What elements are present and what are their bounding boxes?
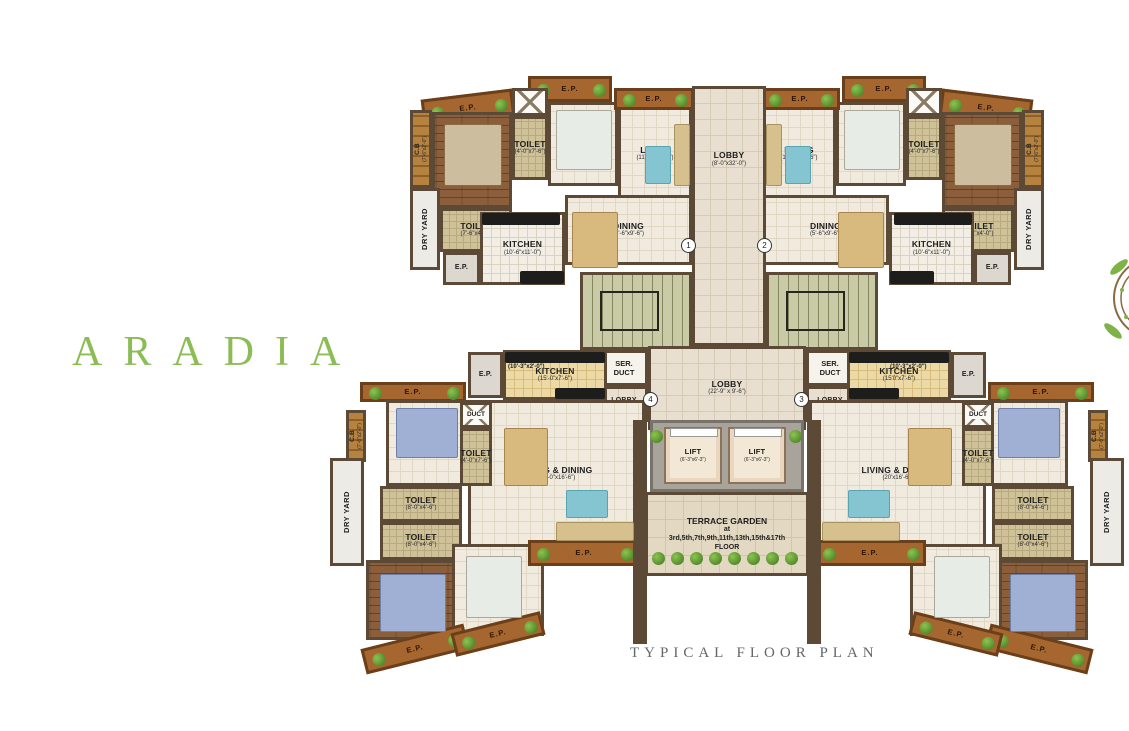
- toilet1-tr: TOILET(4'-0"x7'-6"): [906, 116, 942, 180]
- kitchen-tl-dims: (10'-6"x11'-0"): [504, 250, 541, 257]
- bed: [466, 556, 522, 618]
- toilet1-tr-label: TOILET: [908, 140, 939, 150]
- plant-icon: [461, 635, 477, 651]
- lift-2-label: LIFT: [749, 448, 766, 457]
- toilet-a-br: TOILET(8'-0"x4'-6"): [992, 486, 1074, 522]
- dryyard-tl: DRY YARD: [410, 188, 440, 270]
- counter-dim-label: (10'-3"x2'-0"): [890, 364, 927, 370]
- ep-service-tr: E.P.: [974, 252, 1011, 285]
- ep-balcony-br-b2-label: E.P.: [947, 628, 966, 641]
- toilet1-tr-dims: (4'-0"x7'-6"): [909, 149, 940, 156]
- cupboard-tr: C.B(7'-6"x2'-0"): [1022, 110, 1044, 188]
- bed: [954, 124, 1012, 186]
- kitchen-bl-dims: (15'-0"x7'-6"): [538, 376, 572, 383]
- duct-br: DUCT: [962, 402, 994, 428]
- plant-icon: [537, 548, 550, 561]
- plant-icon: [650, 430, 663, 443]
- plant-icon: [371, 652, 387, 668]
- ep-living-tl: E.P.: [614, 88, 694, 110]
- sofa: [556, 522, 634, 541]
- cupboard-tr-dims: (7'-6"x2'-0"): [1034, 136, 1040, 162]
- toilet-b-br: TOILET(8'-0"x4'-6"): [992, 522, 1074, 560]
- dining-table: [838, 212, 884, 268]
- cupboard-bl-dims: (7'-6"x2'-0"): [357, 423, 363, 449]
- plant-icon: [907, 548, 920, 561]
- ep-service-tl: E.P.: [443, 252, 480, 285]
- lobby-upper-dims: (8'-0"x32'-0"): [712, 161, 746, 168]
- plant-icon: [447, 387, 460, 400]
- cupboard-tl-label: C.B: [414, 143, 421, 155]
- ep-balcony-tr-outer-label: E.P.: [875, 85, 892, 94]
- toilet-a-bl-dims: (8'-0"x4'-6"): [406, 505, 437, 512]
- ep-living-tl-label: E.P.: [645, 95, 662, 104]
- kitchen-counter: [505, 352, 605, 363]
- kitchen-counter: [555, 388, 605, 399]
- toilet-b-bl-label: TOILET: [405, 533, 436, 543]
- plant-icon: [675, 94, 688, 107]
- toilet1-tl: TOILET(4'-0"x7'-6"): [512, 116, 548, 180]
- dryyard-tl-label: DRY YARD: [421, 208, 430, 250]
- plant-icon: [821, 94, 834, 107]
- toilet-small-bl-dims: (4'-0"x7'-6"): [461, 458, 492, 465]
- staircase-right: [766, 272, 878, 350]
- duct-br-label: DUCT: [969, 411, 987, 419]
- bed: [934, 556, 990, 618]
- bed: [556, 110, 612, 170]
- service-duct-right-dims: DUCT: [820, 368, 841, 377]
- kitchen-counter: [520, 271, 564, 284]
- ep-service-br-label: E.P.: [962, 371, 975, 379]
- duct-bl: DUCT: [460, 402, 492, 428]
- toilet-b-bl-dims: (8'-0"x4'-6"): [406, 542, 437, 549]
- plant-icon: [652, 552, 665, 565]
- toilet-a-br-dims: (8'-0"x4'-6"): [1018, 505, 1049, 512]
- toilet1-tl-label: TOILET: [514, 140, 545, 150]
- cupboard-br-label: C.B: [1091, 430, 1098, 442]
- lift-1: LIFT(6'-3"x6'-3"): [664, 427, 722, 484]
- lobby-upper-label: LOBBY: [714, 151, 745, 161]
- toilet-b-br-label: TOILET: [1017, 533, 1048, 543]
- compass-rose-icon: [1092, 245, 1129, 355]
- service-duct-left-label: SER.: [615, 359, 633, 368]
- flat-entry-marker-3: 3: [794, 392, 809, 407]
- toilet-a-br-label: TOILET: [1017, 496, 1048, 506]
- plant-icon: [523, 619, 539, 635]
- lift-1-label: LIFT: [685, 448, 702, 457]
- ep-living-tr-label: E.P.: [791, 95, 808, 104]
- kitchen-counter: [482, 213, 560, 225]
- ep-balcony-bl-right: E.P.: [528, 540, 640, 566]
- toilet1-tl-dims: (4'-0"x7'-6"): [515, 149, 546, 156]
- dining-table: [908, 428, 952, 486]
- dryyard-br: DRY YARD: [1090, 458, 1124, 566]
- kitchen-tr-label: KITCHEN: [912, 240, 951, 250]
- cupboard-tl-dims: (7'-6"x2'-0"): [422, 136, 428, 162]
- terrace-garden-dims: 3rd,5th,7th,9th,11th,13th,15th&17th: [669, 535, 785, 544]
- lobby-main-label: LOBBY: [712, 380, 743, 390]
- kitchen-counter: [849, 388, 899, 399]
- bed: [998, 408, 1060, 458]
- toilet-a-bl-label: TOILET: [405, 496, 436, 506]
- sofa: [766, 124, 782, 186]
- dryyard-tr: DRY YARD: [1014, 188, 1044, 270]
- plant-icon: [1070, 652, 1086, 668]
- bed: [844, 110, 900, 170]
- plant-icon: [980, 636, 996, 652]
- plant-icon: [671, 552, 684, 565]
- dryyard-bl: DRY YARD: [330, 458, 364, 566]
- ep-balcony-tl-outer-label: E.P.: [561, 85, 578, 94]
- flat-entry-marker-4: 4: [643, 392, 658, 407]
- kitchen-br-dims: (15'0"x7'-6"): [883, 376, 915, 383]
- ep-balcony-bl-top: E.P.: [360, 382, 466, 402]
- ep-balcony-br-right-label: E.P.: [861, 549, 878, 558]
- dining-tr-dims: (5'-6"x9'-6"): [810, 231, 841, 238]
- duct-shaft-tl: [512, 88, 548, 116]
- plant-icon: [789, 430, 802, 443]
- cupboard-br-dims: (7'-6"x2'-0"): [1099, 423, 1105, 449]
- ep-balcony-br-top: E.P.: [988, 382, 1094, 402]
- ep-balcony-bl-b1-label: E.P.: [406, 643, 425, 656]
- plant-icon: [785, 552, 798, 565]
- toilet-small-bl-label: TOILET: [460, 449, 491, 459]
- plant-icon: [918, 620, 934, 636]
- dryyard-br-label: DRY YARD: [1103, 491, 1112, 533]
- flat-entry-marker-2: 2: [757, 238, 772, 253]
- plant-icon: [747, 552, 760, 565]
- project-title: ARADIA: [72, 328, 361, 376]
- bed: [380, 574, 446, 632]
- lobby-main: LOBBY(22'-9" x 9'-6"): [648, 346, 806, 430]
- kitchen-tr-dims: (10'-6"x11'-0"): [913, 250, 950, 257]
- plant-icon: [690, 552, 703, 565]
- rug: [566, 490, 608, 518]
- ep-balcony-br-b1-label: E.P.: [1030, 643, 1049, 656]
- plant-icon: [997, 387, 1010, 400]
- service-duct-left-dims: DUCT: [614, 368, 635, 377]
- plant-icon: [823, 548, 836, 561]
- dining-table: [572, 212, 618, 268]
- toilet-small-br: TOILET(4'-0"x7'-6"): [962, 428, 994, 486]
- cupboard-br: C.B(7'-6"x2'-0"): [1088, 410, 1108, 462]
- kitchen-counter: [849, 352, 949, 363]
- cupboard-tr-label: C.B: [1026, 143, 1033, 155]
- ep-living-tr: E.P.: [760, 88, 840, 110]
- cupboard-tl: C.B(7'-6"x2'-0"): [410, 110, 432, 188]
- lift-2: LIFT(6'-3"x6'-3"): [728, 427, 786, 484]
- ep-balcony-bl-top-label: E.P.: [404, 388, 421, 397]
- rug: [785, 146, 811, 184]
- toilet-a-bl: TOILET(8'-0"x4'-6"): [380, 486, 462, 522]
- lift-2-dims: (6'-3"x6'-3"): [744, 457, 770, 463]
- ep-service-bl-label: E.P.: [479, 371, 492, 379]
- cupboard-bl-label: C.B: [349, 430, 356, 442]
- post-right: [807, 420, 821, 644]
- plant-icon: [593, 84, 606, 97]
- ep-balcony-br-top-label: E.P.: [1032, 388, 1049, 397]
- plan-caption: TYPICAL FLOOR PLAN: [630, 645, 879, 662]
- lobby-main-dims: (22'-9" x 9'-6"): [708, 389, 746, 396]
- rug: [645, 146, 671, 184]
- ep-service-tr-label: E.P.: [986, 264, 999, 272]
- plant-icon: [728, 552, 741, 565]
- plant-icon: [766, 552, 779, 565]
- plant-icon: [948, 99, 962, 113]
- plant-icon: [851, 84, 864, 97]
- plant-icon: [623, 94, 636, 107]
- toilet-b-bl: TOILET(8'-0"x4'-6"): [380, 522, 462, 560]
- kitchen-tl-label: KITCHEN: [503, 240, 542, 250]
- dining-table: [504, 428, 548, 486]
- post-left: [633, 420, 647, 644]
- dryyard-bl-label: DRY YARD: [343, 491, 352, 533]
- ep-balcony-br-right: E.P.: [814, 540, 926, 566]
- lobby-upper: LOBBY(8'-0"x32'-0"): [692, 86, 766, 346]
- ep-service-br: E.P.: [951, 352, 986, 398]
- ep-service-tl-label: E.P.: [455, 264, 468, 272]
- kitchen-counter: [890, 271, 934, 284]
- sofa: [822, 522, 900, 541]
- flat-entry-marker-1: 1: [681, 238, 696, 253]
- plant-icon: [709, 552, 722, 565]
- bed: [396, 408, 458, 458]
- plant-icon: [1075, 387, 1088, 400]
- floor-plan-sheet: ARADIA E.P.E.P.C.B(7'-6"x2'-0")BED 2(10'…: [0, 0, 1129, 731]
- sofa: [674, 124, 690, 186]
- terrace-garden-dims: at: [724, 526, 730, 535]
- dining-tr-label: DINING: [810, 222, 841, 232]
- plant-icon: [369, 387, 382, 400]
- ep-balcony-bl-b2-label: E.P.: [489, 628, 508, 641]
- staircase-left: [580, 272, 692, 350]
- ep-service-bl: E.P.: [468, 352, 503, 398]
- service-duct-right-label: SER.: [821, 359, 839, 368]
- kitchen-counter: [894, 213, 972, 225]
- ep-balcony-bl-right-label: E.P.: [575, 549, 592, 558]
- counter-dim-label: (10'-3"x2'-0"): [508, 364, 545, 370]
- cupboard-bl: C.B(7'-6"x2'-0"): [346, 410, 366, 462]
- toilet-small-bl: TOILET(4'-0"x7'-6"): [460, 428, 492, 486]
- duct-shaft-tr: [906, 88, 942, 116]
- plant-icon: [769, 94, 782, 107]
- lift-1-dims: (6'-3"x6'-3"): [680, 457, 706, 463]
- terrace-garden: TERRACE GARDENat3rd,5th,7th,9th,11th,13t…: [645, 492, 809, 576]
- toilet-small-br-dims: (4'-0"x7'-6"): [963, 458, 994, 465]
- dryyard-tr-label: DRY YARD: [1025, 208, 1034, 250]
- terrace-garden-label: TERRACE GARDEN: [687, 516, 767, 527]
- service-duct-left: SER.DUCT: [600, 350, 648, 386]
- bed: [1010, 574, 1076, 632]
- duct-bl-label: DUCT: [467, 411, 485, 419]
- toilet-small-br-label: TOILET: [962, 449, 993, 459]
- toilet-b-br-dims: (8'-0"x4'-6"): [1018, 542, 1049, 549]
- bed: [444, 124, 502, 186]
- plant-icon: [494, 98, 508, 112]
- rug: [848, 490, 890, 518]
